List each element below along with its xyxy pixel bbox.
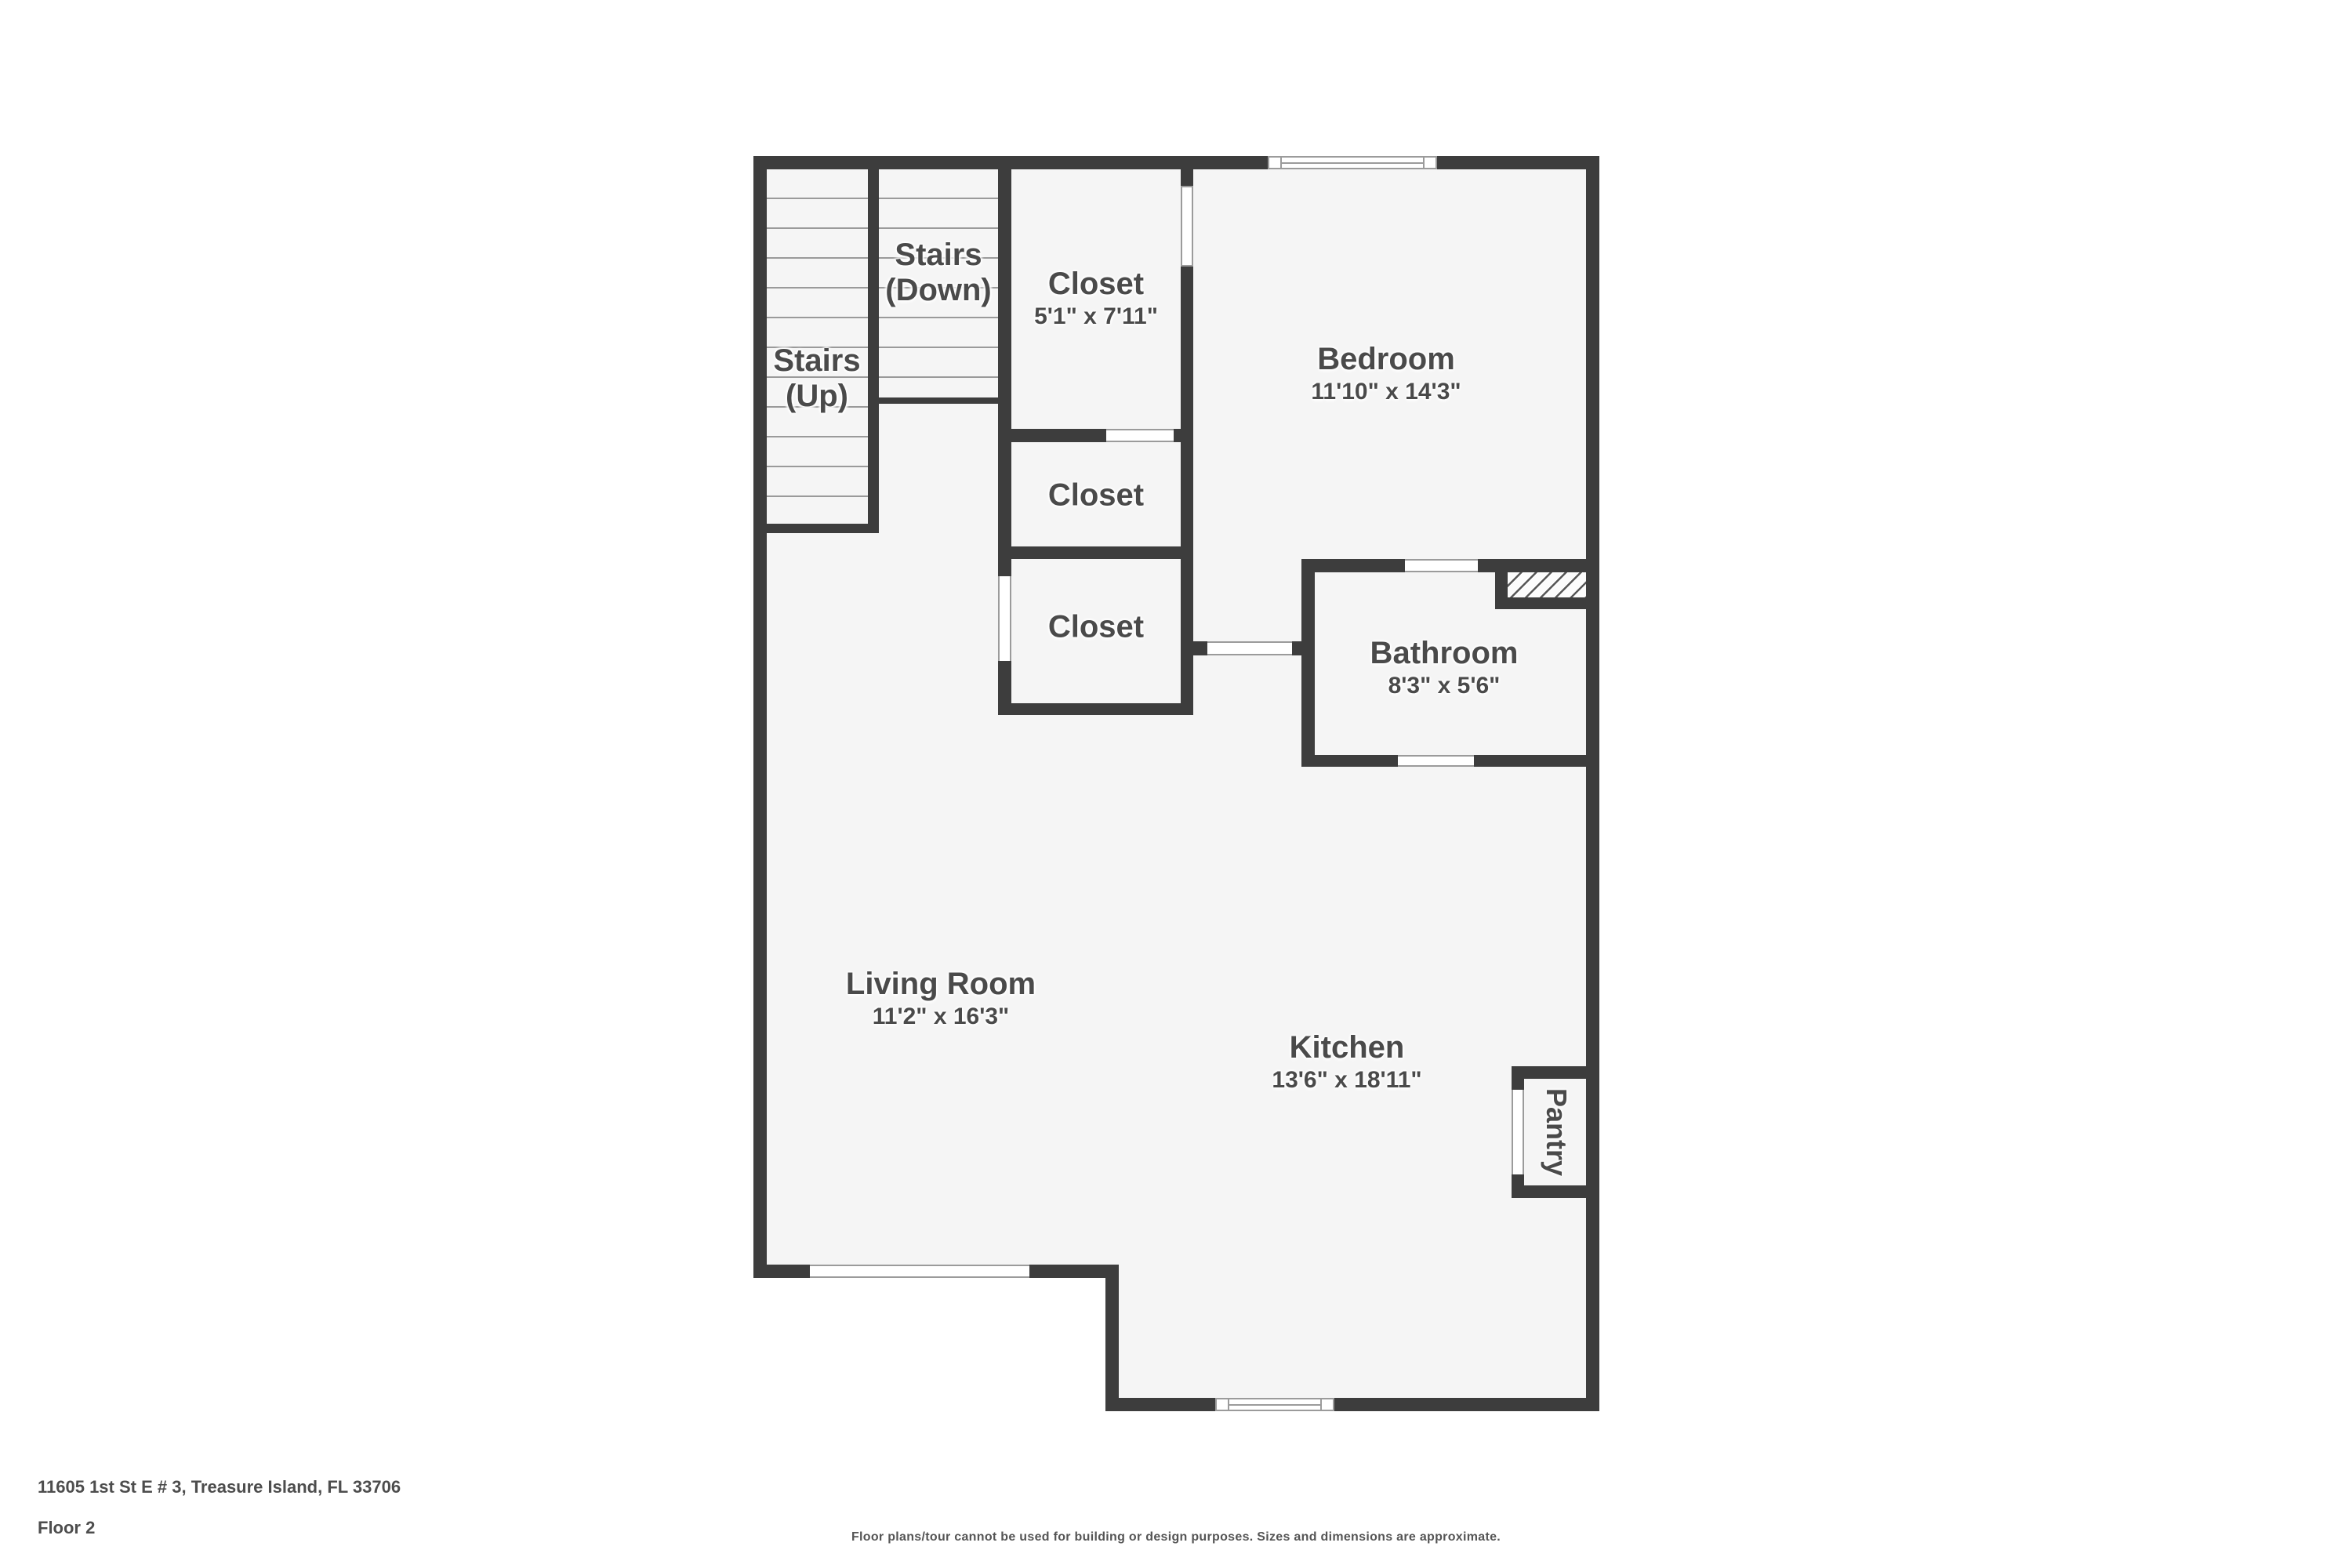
stairs-down-sub: (Down) <box>885 273 992 308</box>
hallway-door-opening <box>1207 641 1292 655</box>
window-jamb <box>1423 158 1436 168</box>
kitchen-window <box>1215 1398 1334 1411</box>
closet-1-dimensions: 5'1" x 7'11" <box>1034 302 1158 332</box>
wall-top <box>753 156 1599 169</box>
closet-divider-door-opening <box>1106 429 1174 442</box>
pantry-label: Pantry <box>1540 1088 1573 1176</box>
bathroom-top-door-opening <box>1405 559 1478 572</box>
living-room-patio-opening <box>810 1265 1029 1278</box>
floor-plan: Stairs (Up) Stairs (Down) Closet 5'1" x … <box>0 0 2352 1568</box>
bathroom-bottom-door-opening <box>1398 755 1474 767</box>
closet-1-label: Closet 5'1" x 7'11" <box>1034 267 1158 331</box>
living-room-label: Living Room 11'2" x 16'3" <box>846 967 1036 1031</box>
kitchen-label: Kitchen 13'6" x 18'11" <box>1272 1030 1421 1094</box>
wall-left <box>753 156 767 1278</box>
pantry-door-opening <box>1512 1090 1524 1174</box>
stairs-up-treads <box>767 169 868 502</box>
closet-3-title: Closet <box>1048 610 1144 645</box>
bedroom-label: Bedroom 11'10" x 14'3" <box>1311 342 1461 406</box>
wall-stairs-divider <box>868 169 879 533</box>
wall-step <box>1105 1265 1119 1411</box>
property-address: 11605 1st St E # 3, Treasure Island, FL … <box>38 1477 401 1497</box>
wall-right <box>1586 156 1599 1411</box>
wall-kitchen-bottom <box>1105 1398 1599 1411</box>
wall-closet-bottom <box>998 703 1193 715</box>
bedroom-dimensions: 11'10" x 14'3" <box>1311 377 1461 407</box>
wall-stairs-down-landing <box>879 397 998 404</box>
stairs-down-title: Stairs <box>885 238 992 273</box>
stairs-up-label: Stairs (Up) <box>773 343 860 414</box>
stairs-up-sub: (Up) <box>773 379 860 414</box>
wall-pantry-bottom <box>1512 1185 1586 1198</box>
wall-bathroom-left <box>1301 559 1315 767</box>
bedroom-title: Bedroom <box>1311 342 1461 377</box>
closet-3-label: Closet <box>1048 610 1144 645</box>
stairs-down-label: Stairs (Down) <box>885 238 992 308</box>
disclaimer-text: Floor plans/tour cannot be used for buil… <box>0 1530 2352 1544</box>
floor-kitchen-extension <box>1119 1265 1586 1398</box>
kitchen-title: Kitchen <box>1272 1030 1421 1065</box>
bathroom-dimensions: 8'3" x 5'6" <box>1370 671 1519 701</box>
living-room-dimensions: 11'2" x 16'3" <box>846 1002 1036 1032</box>
window-jamb <box>1320 1399 1333 1410</box>
wall-niche-bottom <box>1495 597 1586 609</box>
bathroom-title: Bathroom <box>1370 636 1519 671</box>
window-glass-line <box>1280 162 1425 164</box>
stairs-up-title: Stairs <box>773 343 860 379</box>
living-room-title: Living Room <box>846 967 1036 1002</box>
bedroom-window <box>1268 156 1437 169</box>
closet-1-title: Closet <box>1034 267 1158 302</box>
wall-stairs-up-bottom <box>767 524 879 533</box>
hatched-niche <box>1508 572 1586 597</box>
closet-2-label: Closet <box>1048 478 1144 514</box>
window-glass-line <box>1228 1404 1322 1406</box>
closet-1-door-opening <box>1181 186 1193 267</box>
kitchen-dimensions: 13'6" x 18'11" <box>1272 1065 1421 1095</box>
closet-2-title: Closet <box>1048 478 1144 514</box>
closet-3-door-opening <box>998 576 1011 661</box>
wall-closet-divider-2 <box>998 546 1193 559</box>
bathroom-label: Bathroom 8'3" x 5'6" <box>1370 636 1519 700</box>
